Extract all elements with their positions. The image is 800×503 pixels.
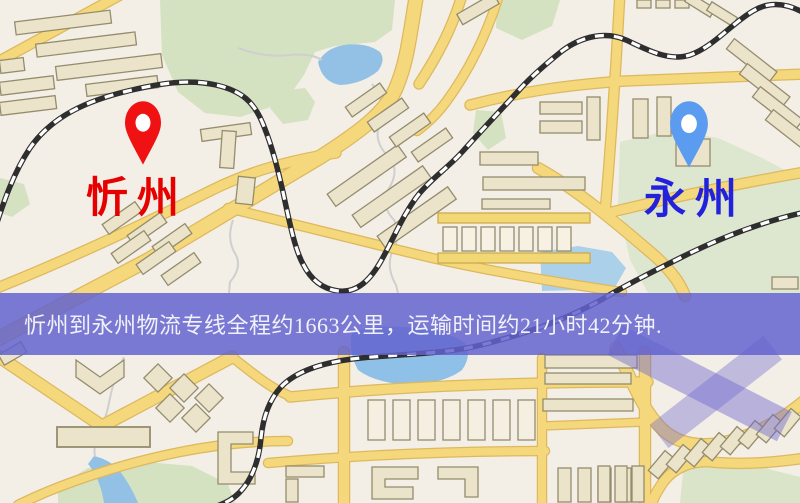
route-info-text: 忻州到永州物流专线全程约1663公里，运输时间约21小时42分钟.	[0, 308, 662, 340]
origin-city-label: 忻州	[86, 178, 188, 220]
route-info-banner: 忻州到永州物流专线全程约1663公里，运输时间约21小时42分钟.	[0, 293, 800, 355]
logistics-route-map-graphic: 忻州 永州 忻州到永州物流专线全程约1663公里，运输时间约21小时42分钟.	[0, 0, 800, 503]
destination-pin-icon	[668, 100, 710, 170]
map-image	[0, 0, 800, 503]
origin-pin-icon	[123, 100, 163, 167]
destination-city-label: 永州	[644, 179, 746, 221]
